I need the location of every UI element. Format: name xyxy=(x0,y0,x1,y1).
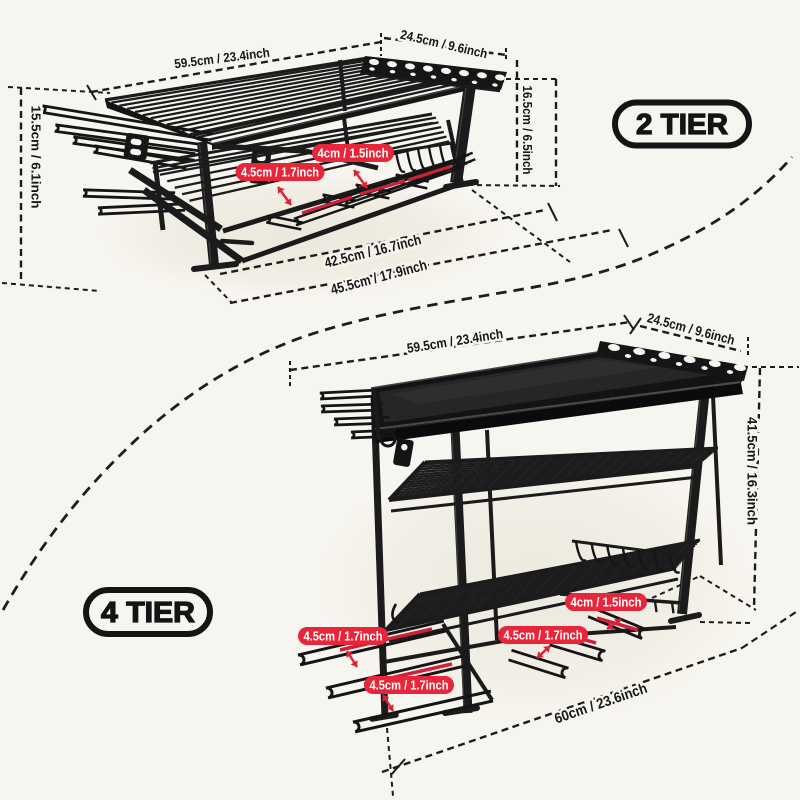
svg-text:4 TIER: 4 TIER xyxy=(101,597,195,629)
svg-text:15.5cm / 6.1inch: 15.5cm / 6.1inch xyxy=(29,106,44,209)
svg-text:4.5cm / 1.7inch: 4.5cm / 1.7inch xyxy=(370,679,449,693)
svg-text:4.5cm / 1.7inch: 4.5cm / 1.7inch xyxy=(241,166,319,180)
svg-text:16.5cm / 6.5inch: 16.5cm / 6.5inch xyxy=(520,86,534,175)
svg-text:41.5cm / 16.3inch: 41.5cm / 16.3inch xyxy=(745,417,760,525)
svg-text:4cm / 1.5inch: 4cm / 1.5inch xyxy=(318,147,389,161)
svg-text:4cm / 1.5inch: 4cm / 1.5inch xyxy=(571,596,642,610)
svg-text:4.5cm / 1.7inch: 4.5cm / 1.7inch xyxy=(304,630,383,644)
svg-text:2 TIER: 2 TIER xyxy=(636,109,728,141)
svg-text:4.5cm / 1.7inch: 4.5cm / 1.7inch xyxy=(504,629,583,643)
